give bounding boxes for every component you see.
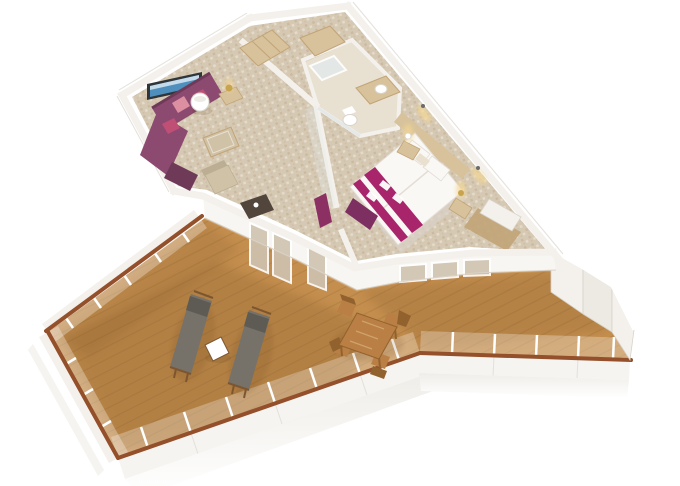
- sink: [375, 85, 387, 94]
- table-leg: [341, 345, 342, 356]
- bedside-lamp-brass: [458, 190, 464, 196]
- post: [613, 337, 614, 359]
- glass-door-panel: [273, 233, 291, 283]
- glass-door-panel: [250, 223, 268, 273]
- bedside-lamp: [405, 133, 411, 139]
- suite-3d-floorplan: [0, 0, 680, 486]
- drum-lamp-top: [194, 96, 206, 102]
- desk-item: [254, 203, 259, 208]
- post: [578, 336, 579, 358]
- toilet: [343, 115, 357, 126]
- table-lamp: [226, 85, 233, 92]
- post: [452, 332, 453, 354]
- wall-sconce: [421, 104, 425, 108]
- post: [536, 335, 537, 357]
- post: [494, 334, 495, 356]
- render-stage: [0, 0, 680, 486]
- wall-sconce: [476, 166, 480, 170]
